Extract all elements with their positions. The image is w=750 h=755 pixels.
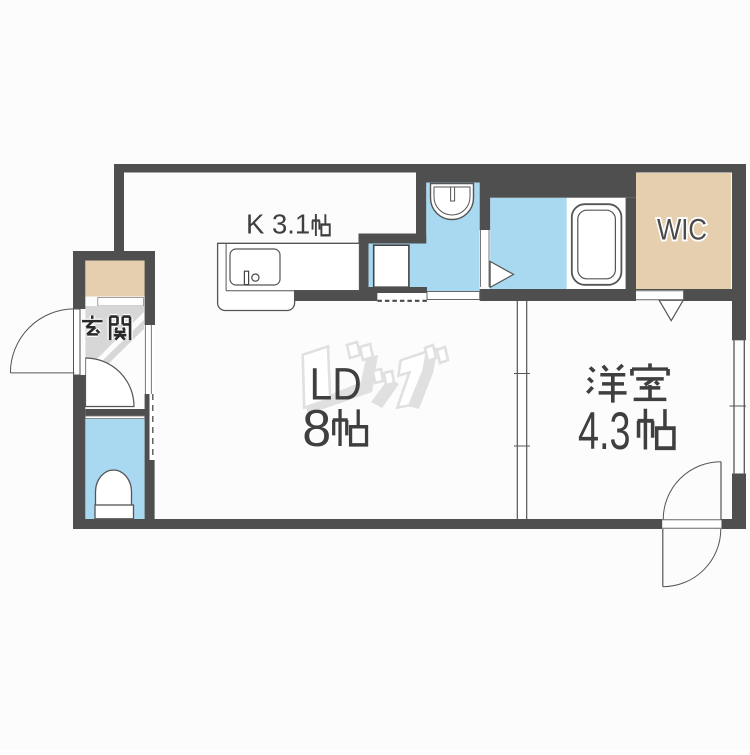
svg-text:K 3.1: K 3.1 xyxy=(246,209,310,240)
svg-text:8: 8 xyxy=(302,400,331,458)
svg-text:4.3: 4.3 xyxy=(578,400,631,460)
svg-text:WIC: WIC xyxy=(657,213,707,246)
